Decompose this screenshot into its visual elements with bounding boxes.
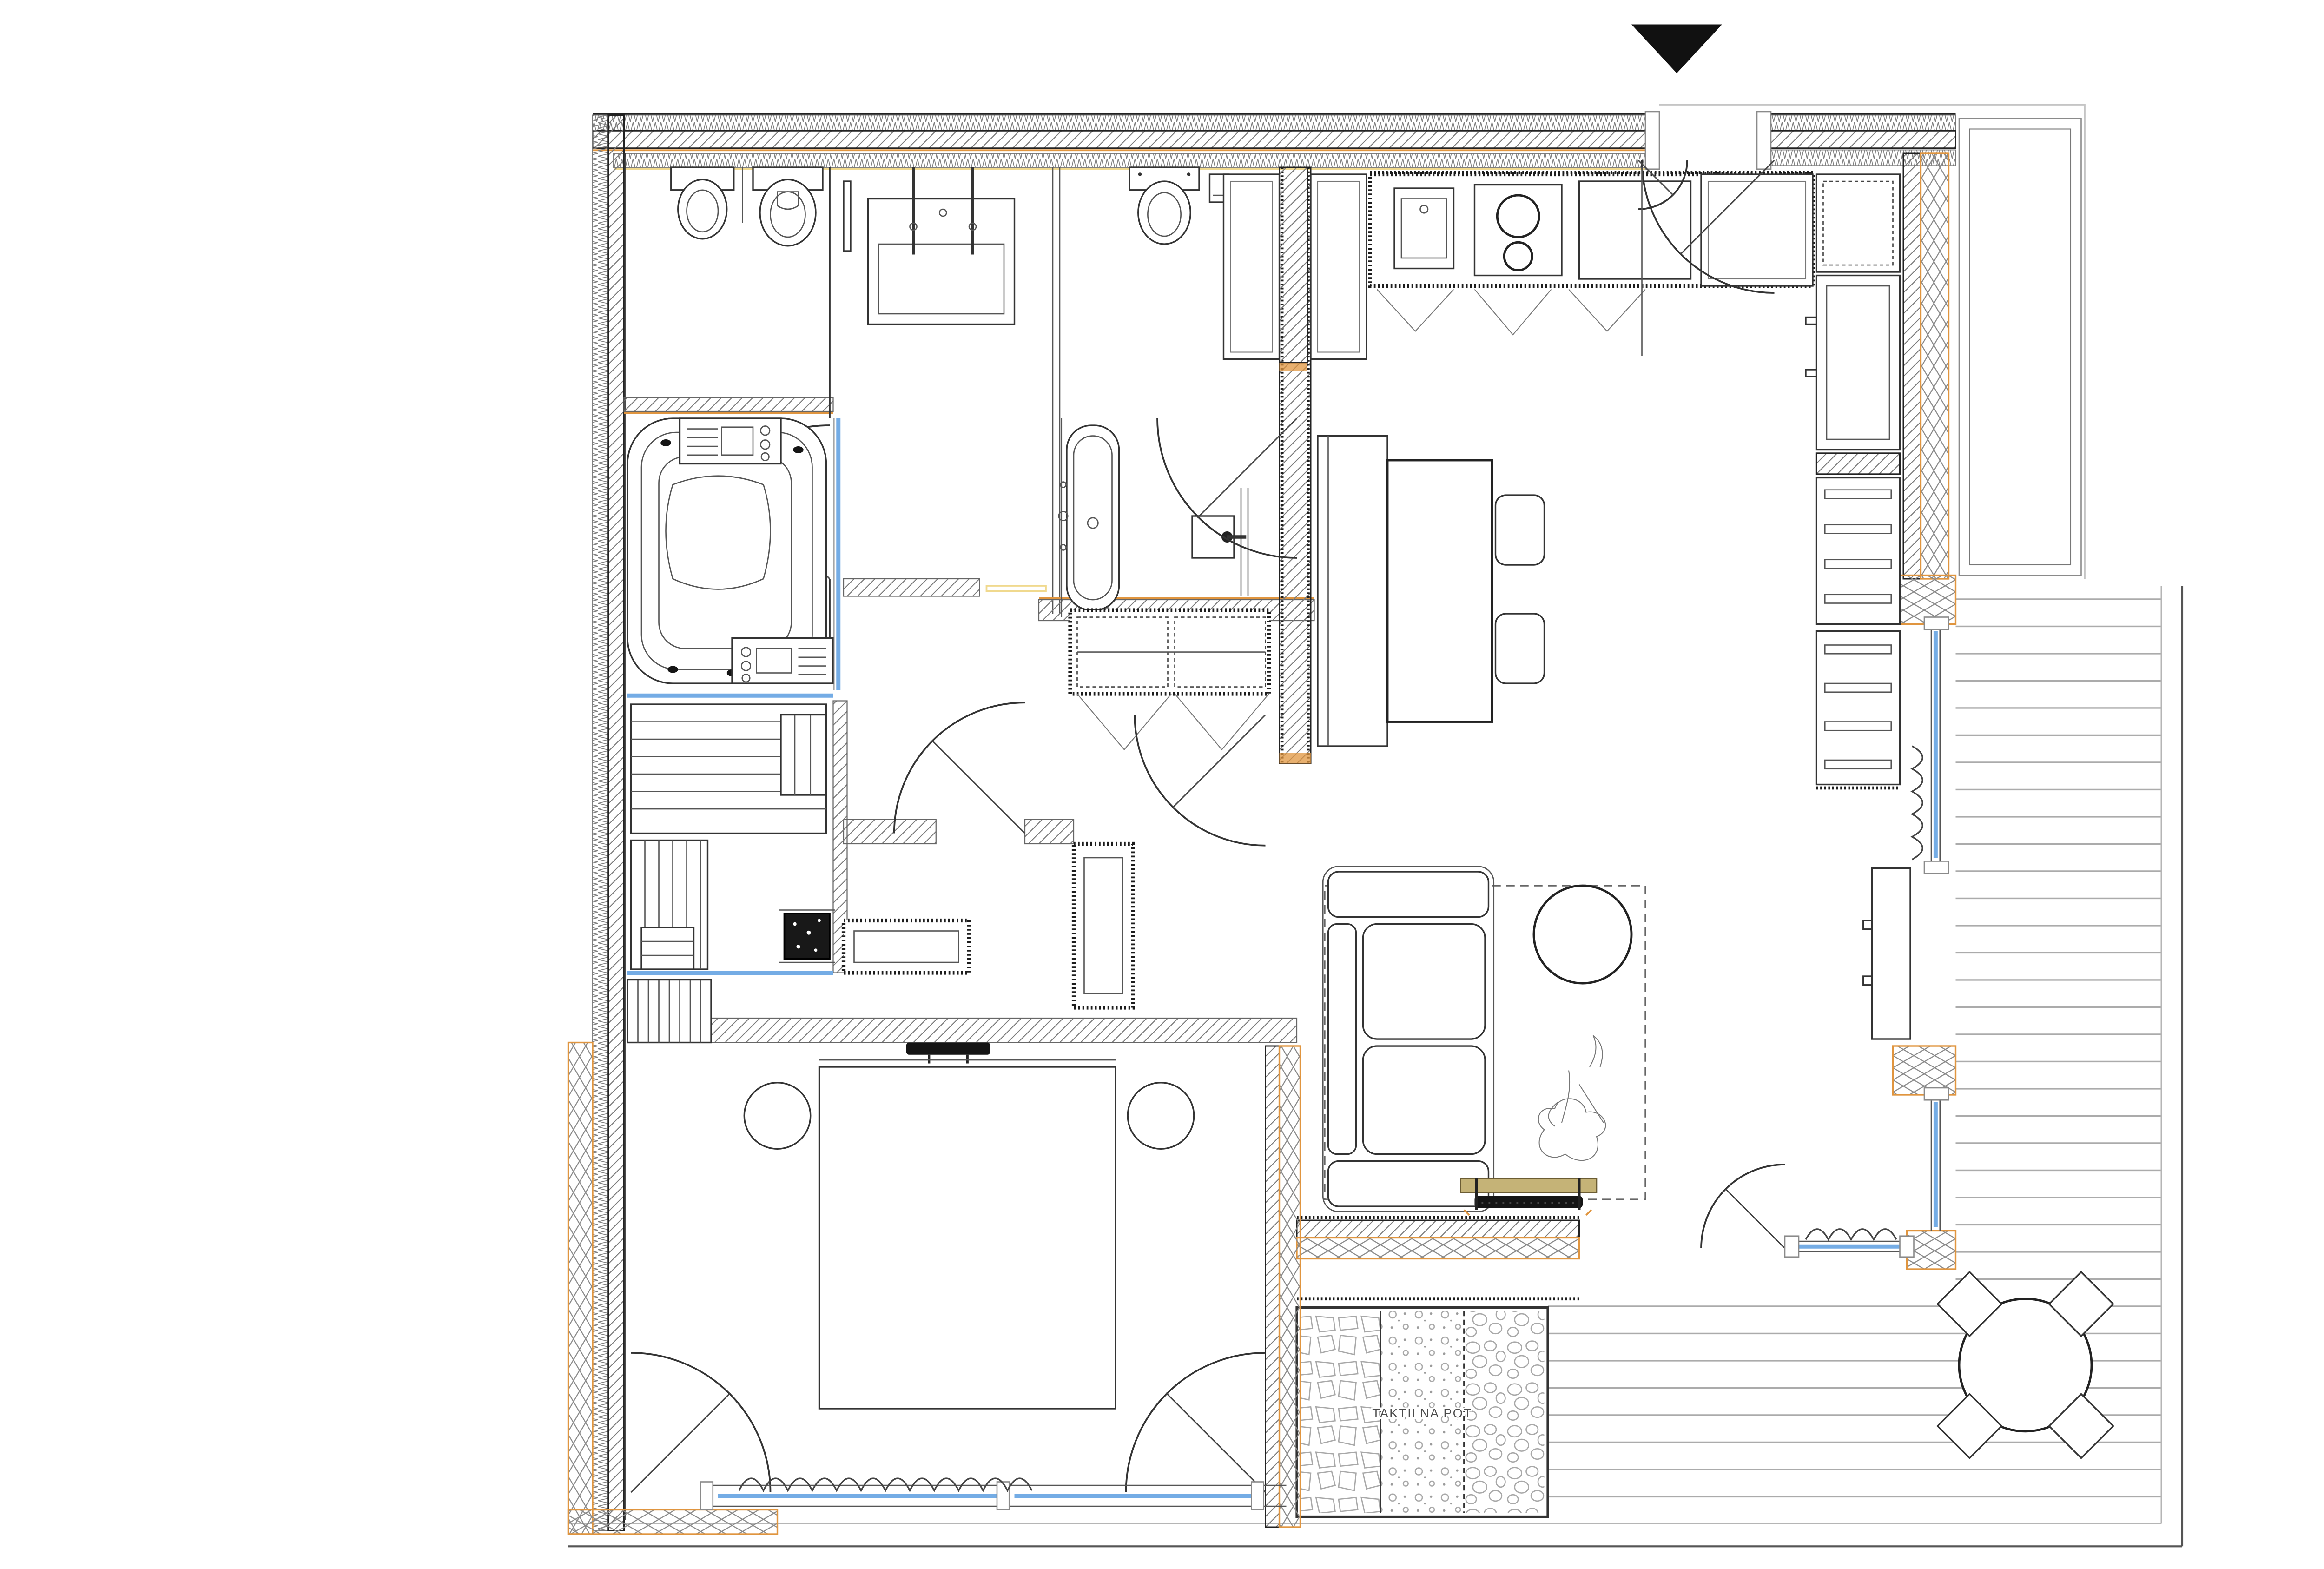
towel-rail <box>844 181 851 251</box>
hall-cabinet <box>1074 844 1133 1008</box>
dishwasher <box>1701 174 1813 286</box>
bidet <box>671 167 734 239</box>
round-pouf <box>1534 886 1631 983</box>
cooktop <box>1475 185 1562 276</box>
plant <box>1538 1036 1605 1161</box>
kitchen-sink <box>1394 188 1454 269</box>
living-terrace-door <box>1701 1165 1785 1248</box>
floor-plan-drawing: TAKTILNA POT <box>0 0 2324 1569</box>
sauna-headrest <box>781 715 826 795</box>
jacuzzi-control-panel-top <box>680 418 781 464</box>
curtain-bedroom <box>739 1478 1032 1490</box>
curtain-south <box>1806 1229 1896 1240</box>
bed <box>819 1067 1116 1409</box>
bedroom <box>627 980 1287 1510</box>
dining-chair <box>1496 614 1545 683</box>
hallway <box>844 610 1269 1008</box>
window-bedroom-south <box>701 1482 1287 1510</box>
bedroom-terrace-door <box>1126 1353 1266 1492</box>
nightstand-right <box>1128 1083 1194 1149</box>
toilet-2 <box>1129 167 1199 244</box>
tactile-flagstone-strip <box>1301 1311 1381 1513</box>
sauna-heater <box>779 910 835 963</box>
double-sink-vanity <box>868 167 1015 324</box>
counter-cabinet <box>1579 181 1691 279</box>
floor-plan-canvas: TAKTILNA POT <box>0 0 2324 1569</box>
hall-bench <box>844 920 969 973</box>
spa-glass-partition <box>834 418 838 690</box>
fridge <box>1806 276 1900 450</box>
console-table <box>1863 868 1910 1039</box>
drawer-unit-1 <box>1816 478 1900 624</box>
tactile-pebble-strip <box>1464 1311 1545 1513</box>
dining-chair <box>1496 495 1545 565</box>
window-east <box>1924 617 1949 1231</box>
north-arrow-icon <box>1631 25 1722 73</box>
corridor-door <box>1135 715 1265 846</box>
terrace-planter <box>1959 119 2081 576</box>
dining-table <box>1387 460 1492 722</box>
tactile-path-panel: TAKTILNA POT <box>1297 1299 1579 1517</box>
sauna-step-stool <box>641 927 694 969</box>
kitchen-tall-cabinet <box>1311 174 1367 359</box>
tactile-path-label: TAKTILNA POT <box>1372 1406 1472 1420</box>
sofa <box>1323 867 1494 1212</box>
sideboard <box>1318 436 1387 747</box>
room-spa <box>627 418 838 690</box>
terrace-deck-east <box>1956 586 2162 1304</box>
closet-slatted-wardrobe <box>627 980 711 1043</box>
dining-area <box>1318 436 1545 747</box>
room-bathroom <box>1059 167 1297 617</box>
tv-bench <box>1461 1178 1597 1215</box>
bath-lobby <box>844 167 1015 324</box>
room-sauna <box>627 695 835 973</box>
hall-wardrobe <box>1070 610 1269 750</box>
toilet <box>753 167 823 246</box>
shower-column <box>1224 174 1280 359</box>
drawer-unit-2 <box>1816 631 1900 785</box>
nightstand-left <box>744 1083 811 1149</box>
kitchen-counter <box>1370 172 1813 286</box>
kitchen-tall-units <box>1806 174 1900 788</box>
window-south <box>1785 1236 1914 1257</box>
bathtub <box>1059 418 1119 617</box>
cabinet-open-marks <box>1377 290 1646 335</box>
jacuzzi-control-panel-bottom <box>732 638 833 684</box>
bedroom-door-left <box>631 1353 771 1492</box>
hall-door <box>894 702 1025 833</box>
curtain-east <box>1912 746 1923 860</box>
wall-hung-basin <box>1192 516 1246 558</box>
